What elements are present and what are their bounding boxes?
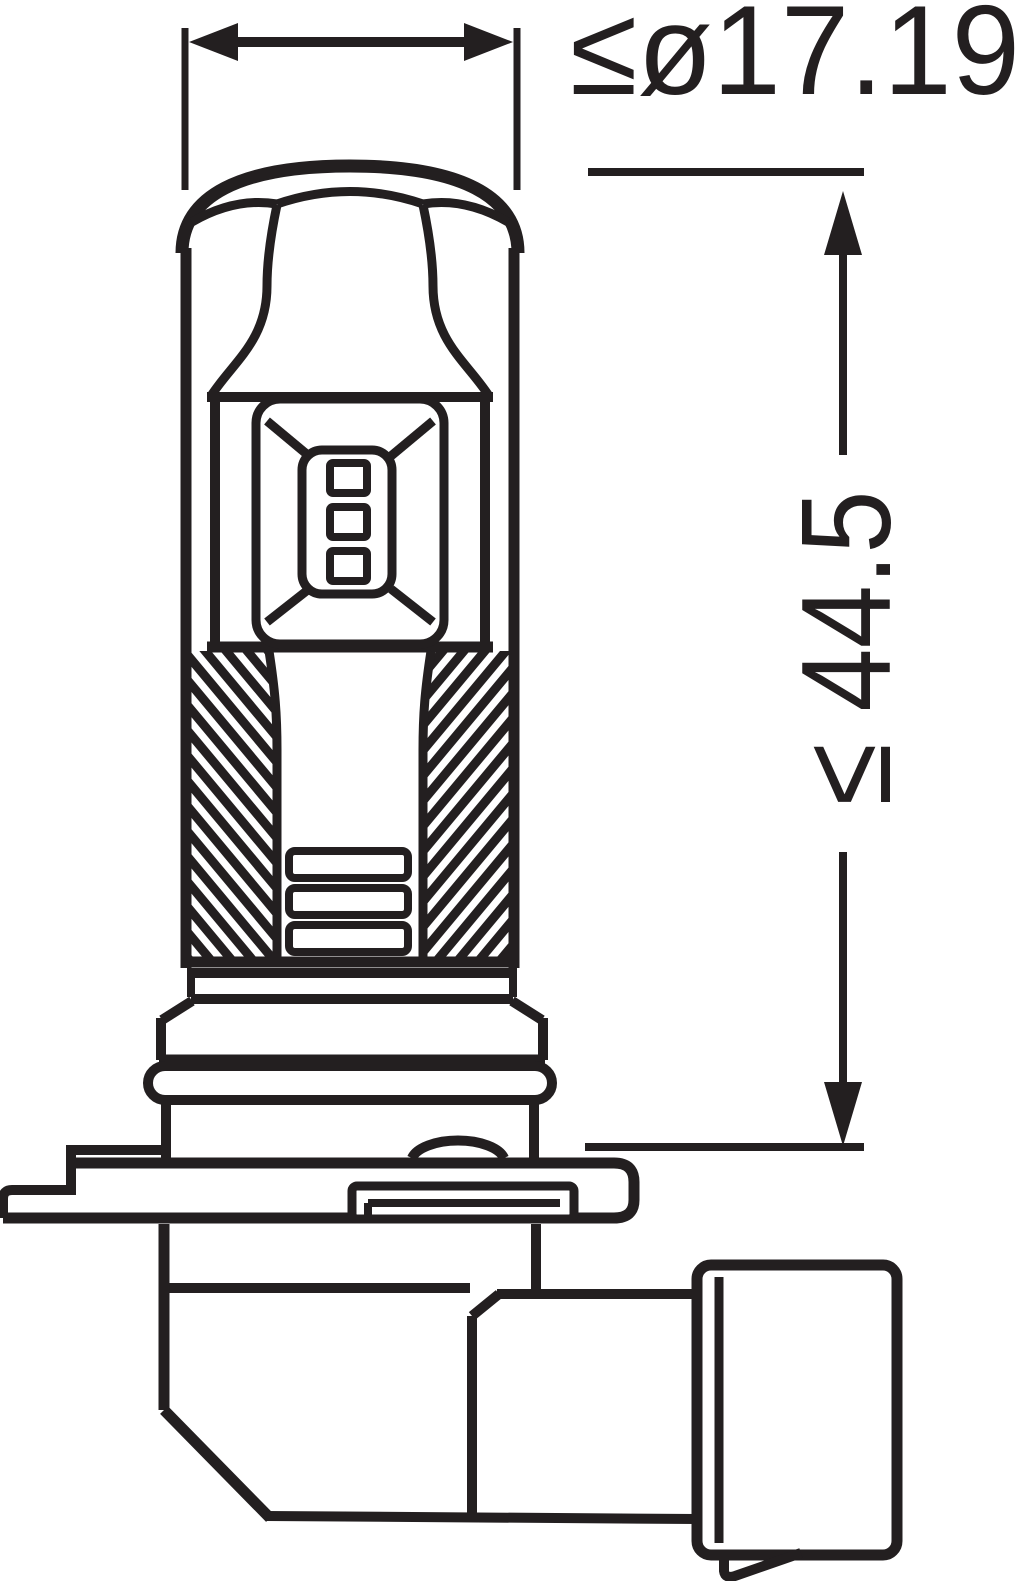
base-arc-notch (412, 1141, 504, 1158)
lower-bottom-line (266, 1516, 697, 1519)
technical-drawing: ≤ø17.19 ≤ 44.5 (0, 0, 1024, 1581)
mounting-flange (3, 1150, 634, 1219)
connector-socket (697, 1265, 897, 1577)
length-dimension: ≤ 44.5 (585, 172, 917, 1147)
lower-housing (164, 1224, 697, 1519)
arrowhead-down-icon (824, 1082, 862, 1146)
lens-bell (211, 205, 489, 396)
arrowhead-up-icon (824, 191, 862, 255)
vent-slots (289, 851, 408, 952)
led-module (207, 399, 493, 647)
arrowhead-right-icon (464, 23, 513, 61)
lower-chamfer (164, 1410, 270, 1518)
arrowhead-left-icon (189, 23, 238, 61)
bulb-cap-scallops (192, 192, 508, 223)
length-label: ≤ 44.5 (775, 491, 917, 806)
o-ring (148, 1066, 552, 1100)
connector-outline (697, 1265, 897, 1555)
drawing-canvas: ≤ø17.19 ≤ 44.5 (0, 0, 1024, 1581)
base-stack (148, 973, 552, 1159)
collar-2-chamfer-left (162, 1001, 192, 1020)
led-chips (330, 463, 367, 581)
bulb-body (0, 166, 767, 968)
collar-2-chamfer-right (512, 1001, 542, 1020)
lower-divider-bevel (472, 1294, 499, 1316)
diameter-label: ≤ø17.19 (570, 0, 1020, 121)
led-window (302, 450, 392, 594)
heatsink (0, 640, 767, 964)
